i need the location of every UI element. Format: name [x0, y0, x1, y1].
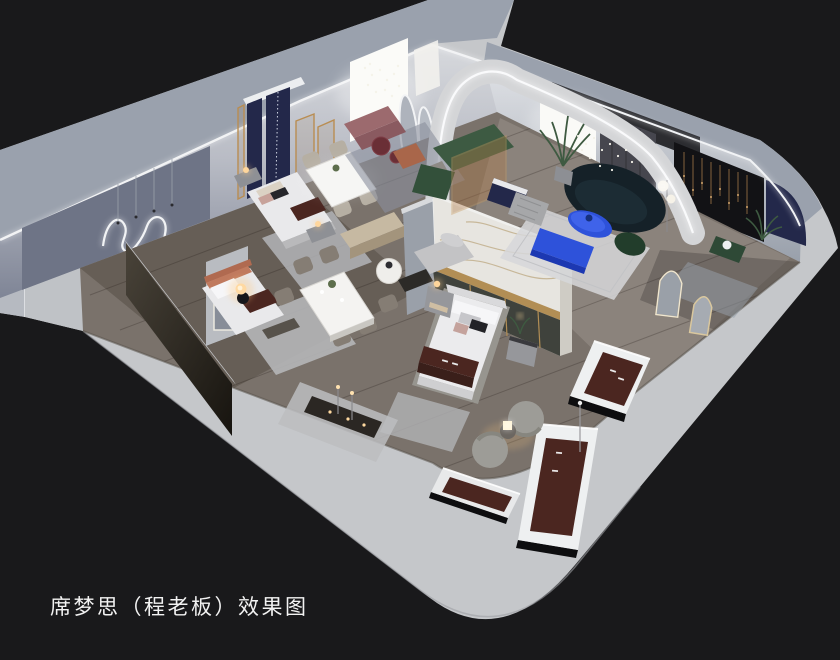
inset-downlight-2: [518, 314, 522, 318]
dining-a-plant: [328, 280, 336, 288]
lamp-hotspot: [238, 286, 243, 291]
dining-b-plant: [333, 165, 340, 172]
pedestal-sculpture: [386, 262, 393, 269]
table-sculpture: [586, 215, 593, 222]
render-canvas: 席梦思（程老板）效果图: [0, 0, 840, 660]
doorway-glow: [414, 40, 440, 96]
showroom-render: [0, 0, 840, 660]
navy-drape-2: [266, 87, 290, 188]
burgundy-table-large: [372, 137, 390, 155]
caption: 席梦思（程老板）效果图: [50, 591, 309, 621]
bench-pillow: [723, 241, 732, 250]
